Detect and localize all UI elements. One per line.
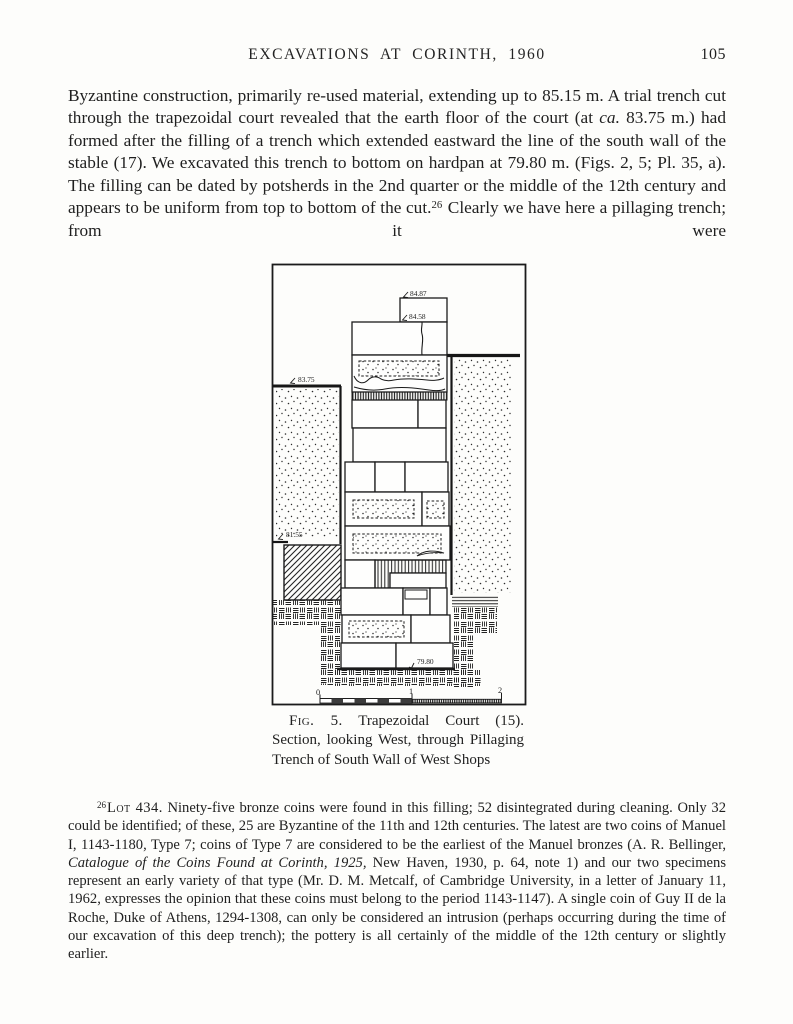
section-drawing: 84.87 84.58 83.75 81.55 79.80 0 1 2: [271, 263, 527, 706]
figure-caption: Fig. 5. Trapezoidal Court (15). Section,…: [272, 712, 524, 770]
scale-bar: 0 1 2: [316, 686, 502, 703]
figure-5: 84.87 84.58 83.75 81.55 79.80 0 1 2: [271, 263, 527, 706]
running-head: EXCAVATIONS AT CORINTH, 1960 105: [68, 46, 726, 66]
body-paragraph: Byzantine construction, primarily re-use…: [68, 85, 726, 242]
page-number: 105: [701, 46, 727, 64]
footnote-marker: 26: [431, 199, 442, 211]
body-italic-ca: ca.: [599, 108, 620, 127]
document-page: EXCAVATIONS AT CORINTH, 1960 105 Byzanti…: [0, 0, 793, 1024]
elevation-label-8375: 83.75: [298, 375, 315, 384]
running-head-title: EXCAVATIONS AT CORINTH, 1960: [68, 46, 726, 64]
footnote-26: 26Lot 434. Ninety-five bronze coins were…: [68, 799, 726, 963]
scale-label-0: 0: [316, 688, 320, 697]
caption-fig-number: Fig. 5.: [289, 713, 343, 729]
elevation-label-8458: 84.58: [409, 312, 426, 321]
wall-blocks: [337, 298, 455, 669]
footnote-text-segment: Ninety-five bronze coins were found in t…: [68, 800, 726, 853]
footnote-lot-label: Lot 434.: [107, 800, 163, 816]
footnote-italic-title: Catalogue of the Coins Found at Corinth,…: [68, 855, 367, 871]
footnote-number: 26: [97, 800, 106, 810]
elevation-label-8487: 84.87: [410, 289, 427, 298]
elevation-label-8155: 81.55: [286, 530, 303, 539]
elevation-label-7980: 79.80: [417, 657, 434, 666]
